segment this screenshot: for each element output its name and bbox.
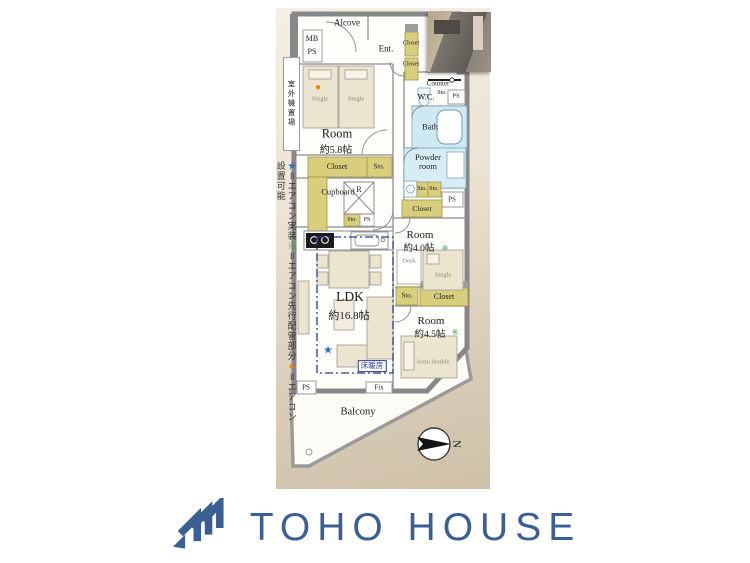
label-alcove: Alcove [334, 18, 360, 27]
ac-legend: ★＝エアコン実装※＝エアコン先行配管部分●＝エアコン設置可能 [275, 161, 297, 429]
label-room40-size: 約4.0帖 [404, 245, 435, 255]
label-sto-mid-1: Sto. [417, 186, 427, 192]
ac-installed-star-icon: ★ [323, 346, 333, 357]
label-single-2: Single [348, 97, 365, 104]
label-desk: Desk [402, 259, 415, 266]
label-powder-room: Powder room [405, 153, 451, 171]
brand-name: TOHO HOUSE [250, 506, 581, 550]
label-ps-mid: PS [448, 196, 456, 203]
floorplan-drawing: N [0, 0, 750, 563]
pillow [427, 254, 439, 264]
label-single-1: Single [312, 97, 329, 104]
compass: N [417, 428, 462, 460]
label-ldk-size: 約16.8帖 [328, 311, 369, 323]
label-ldk: LDK [336, 290, 364, 304]
outdoor-unit-area: 室外機置場 [283, 57, 300, 151]
legend-pipe-icon: ※ [287, 241, 297, 251]
chair [317, 255, 328, 268]
label-room45: Room [418, 316, 445, 328]
tv-board [298, 281, 309, 334]
label-balcony: Balcony [341, 406, 376, 417]
label-room40: Room [407, 230, 434, 242]
label-sto-mid-2: Sto. [429, 186, 439, 192]
label-cupboard: Cupboard [321, 188, 355, 197]
photo-inset [428, 12, 491, 72]
label-ent-closet-1: Closet [403, 41, 420, 48]
label-sto-lower: Sto. [401, 292, 412, 299]
photo-cabinet [434, 20, 460, 34]
label-single-3: Single [435, 273, 452, 280]
pillow [309, 70, 331, 79]
label-ps-top: PS [308, 48, 317, 56]
faucet-icon [450, 78, 454, 82]
floor-heating-label: 床暖房 [358, 360, 387, 372]
label-room58: Room [322, 127, 353, 140]
label-room58-size: 約5.8帖 [320, 146, 353, 157]
chair [370, 272, 381, 285]
label-sto-kitchen: Sto. [347, 217, 357, 223]
washer-icon [404, 181, 417, 197]
label-ent-closet-2: Closet [403, 62, 420, 69]
label-mb: MB [306, 35, 318, 43]
legend-pipe-text: ＝エアコン先行配管部分 [287, 251, 297, 361]
ac-possible-dot-icon: ● [315, 83, 321, 93]
floorplan-page: N 室外機置場 ★＝エアコン実装※＝エアコン先行配管部分●＝エアコン設置可能 A… [0, 0, 750, 563]
label-ent: Ent. [379, 44, 394, 53]
label-closet-row: Closet [327, 163, 347, 171]
label-closet-lower: Closet [434, 293, 454, 301]
label-sto-wc: Sto. [437, 90, 447, 96]
label-bath: Bath [422, 123, 438, 132]
label-room45-size: 約4.5帖 [415, 331, 446, 341]
label-wc: W.C. [417, 93, 434, 102]
desk-icon [397, 250, 421, 284]
label-ps-kitchen: PS [364, 217, 371, 223]
sofa [367, 297, 393, 359]
chair [370, 255, 381, 268]
photo-door [473, 16, 483, 50]
label-fridge: R [356, 186, 361, 194]
legend-star-text: ＝エアコン実装 [287, 171, 297, 241]
dining-table [329, 251, 369, 288]
duct-strip-top [405, 24, 418, 32]
legend-star-icon: ★ [287, 161, 297, 171]
ac-piping-mark-icon-1: ※ [442, 245, 449, 253]
chair [317, 272, 328, 285]
bathtub-icon [437, 110, 462, 144]
footer-brand-bar: TOHO HOUSE [0, 496, 750, 560]
ac-piping-mark-icon-2: ※ [452, 329, 459, 337]
label-ps-wc: PS [452, 94, 459, 101]
pillow [345, 70, 367, 79]
toho-house-logo-icon [169, 498, 235, 558]
label-semi-double: Semi double [416, 360, 450, 367]
label-ps-bottom: PS [302, 384, 310, 391]
exterior-wall-block [290, 14, 298, 62]
legend-dot-icon: ● [287, 361, 297, 372]
label-fix: Fix [374, 384, 383, 391]
label-sto-row: Sto. [373, 163, 384, 170]
label-counter: Counter [427, 80, 450, 87]
label-closet-mid: Closet [412, 205, 431, 213]
pillow [404, 342, 414, 370]
north-label: N [450, 440, 462, 448]
